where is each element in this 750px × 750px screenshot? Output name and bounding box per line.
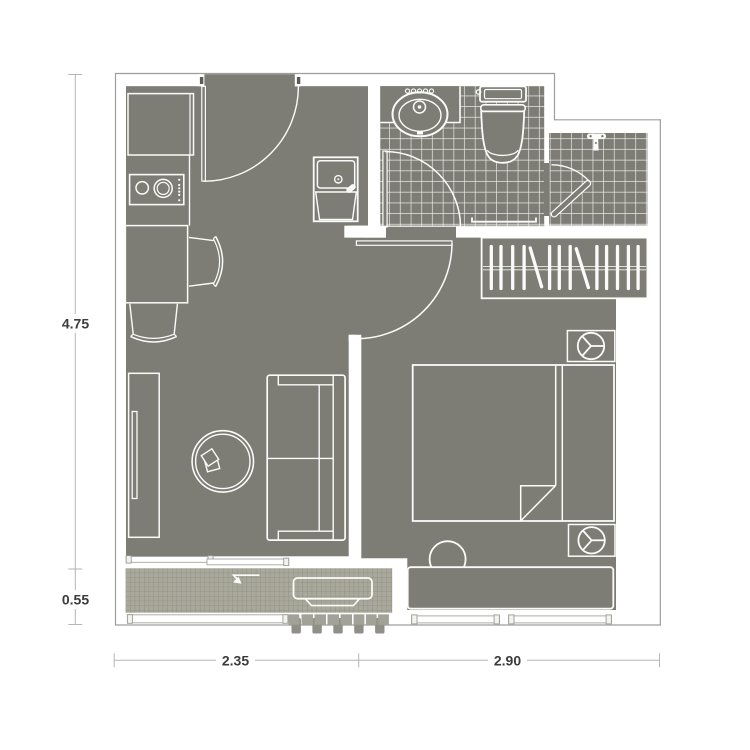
svg-text:2.90: 2.90 — [494, 652, 521, 668]
svg-text:2.35: 2.35 — [222, 652, 249, 668]
svg-text:0.55: 0.55 — [62, 592, 89, 608]
svg-text:4.75: 4.75 — [62, 316, 89, 332]
